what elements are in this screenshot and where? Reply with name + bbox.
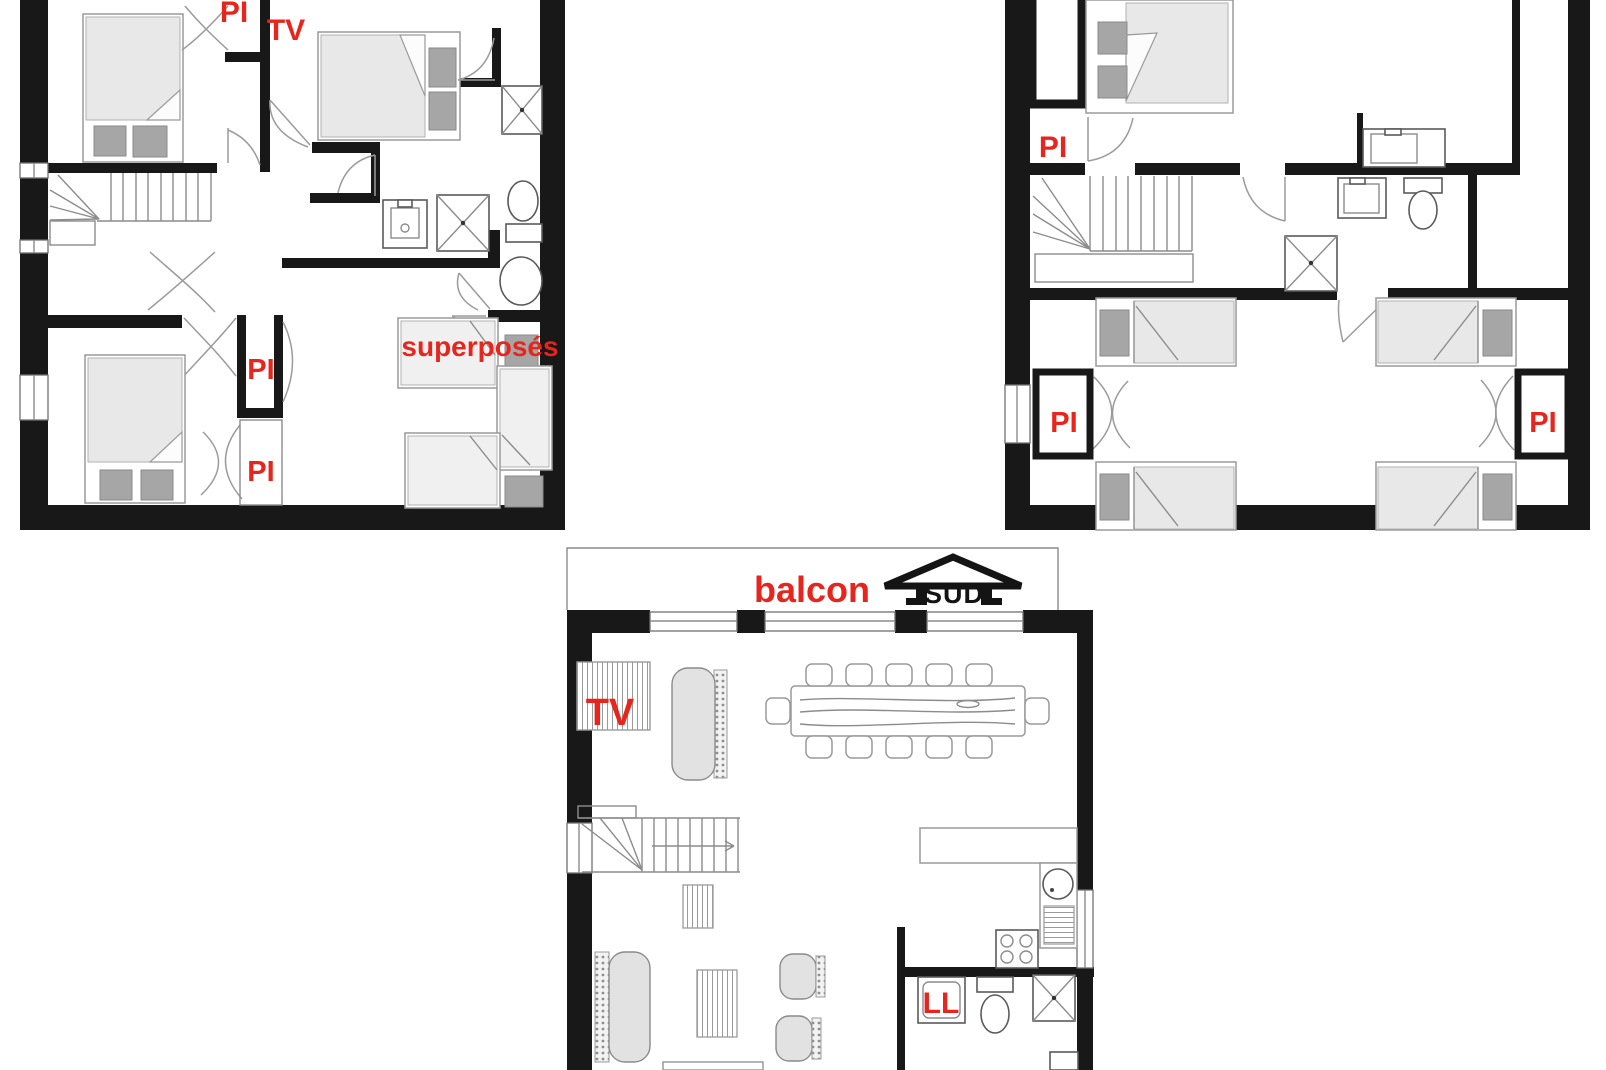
stool (683, 885, 713, 928)
label-pi-right-bottom-right: PI (1529, 407, 1556, 439)
right-unit: PI PI PI (1005, 0, 1590, 530)
double-bed (83, 14, 183, 162)
label-ll: LL (923, 987, 960, 1020)
kitchen-counter (920, 828, 1077, 863)
floor-plan: PI TV PI PI superposés (0, 0, 1606, 1070)
table-partial (663, 1062, 763, 1070)
dish-drainer (1044, 906, 1074, 944)
label-pi-right-bottom-left: PI (1050, 407, 1077, 439)
dining-table (791, 686, 1025, 736)
label-balcon: balcon (754, 569, 870, 610)
bathroom-sink (1338, 178, 1386, 218)
shower (1285, 236, 1337, 291)
stairs (1033, 176, 1193, 282)
armchair (780, 954, 825, 999)
shower (437, 195, 489, 251)
twin-bed (1376, 462, 1516, 530)
twin-bed (1096, 298, 1236, 366)
left-unit: PI TV PI PI superposés (20, 0, 565, 530)
kitchen-sink (1043, 869, 1073, 899)
right-unit-windows (1005, 385, 1030, 443)
twin-bed (1096, 462, 1236, 530)
armchair (776, 1016, 821, 1061)
stairs (50, 173, 211, 245)
twin-bed (1376, 298, 1516, 366)
coffee-table (697, 970, 737, 1037)
label-pi-right-top: PI (1039, 131, 1067, 164)
label-tv-living: TV (586, 692, 635, 734)
shower (1033, 975, 1075, 1021)
living-unit: TV LL (567, 610, 1094, 1070)
double-bed (318, 32, 460, 140)
double-bed (85, 355, 185, 503)
closet (1032, 0, 1082, 104)
label-sud: SUD (924, 579, 984, 609)
label-pi-closet-upper: PI (247, 354, 274, 386)
south-compass-icon: SUD (885, 557, 1021, 609)
floor-plan-page: PI TV PI PI superposés (0, 0, 1606, 1070)
double-bed (1086, 0, 1233, 113)
bathroom-sink (1363, 129, 1445, 167)
toilet (977, 977, 1013, 1033)
bathroom-sink (383, 200, 427, 248)
kitchen (920, 828, 1077, 977)
label-pi-top-left: PI (220, 0, 248, 29)
label-tv-bedroom: TV (267, 14, 305, 47)
toilet (1404, 178, 1442, 229)
balcony: balcon SUD (567, 548, 1058, 610)
sink-partial (1050, 1052, 1078, 1070)
toilet (500, 257, 542, 305)
shower (502, 86, 542, 134)
label-superposes: superposés (401, 331, 558, 362)
toilet (506, 181, 542, 242)
sofa (672, 668, 727, 780)
stairs (578, 806, 740, 872)
sofa (595, 952, 650, 1062)
label-pi-closet-lower: PI (247, 456, 274, 488)
